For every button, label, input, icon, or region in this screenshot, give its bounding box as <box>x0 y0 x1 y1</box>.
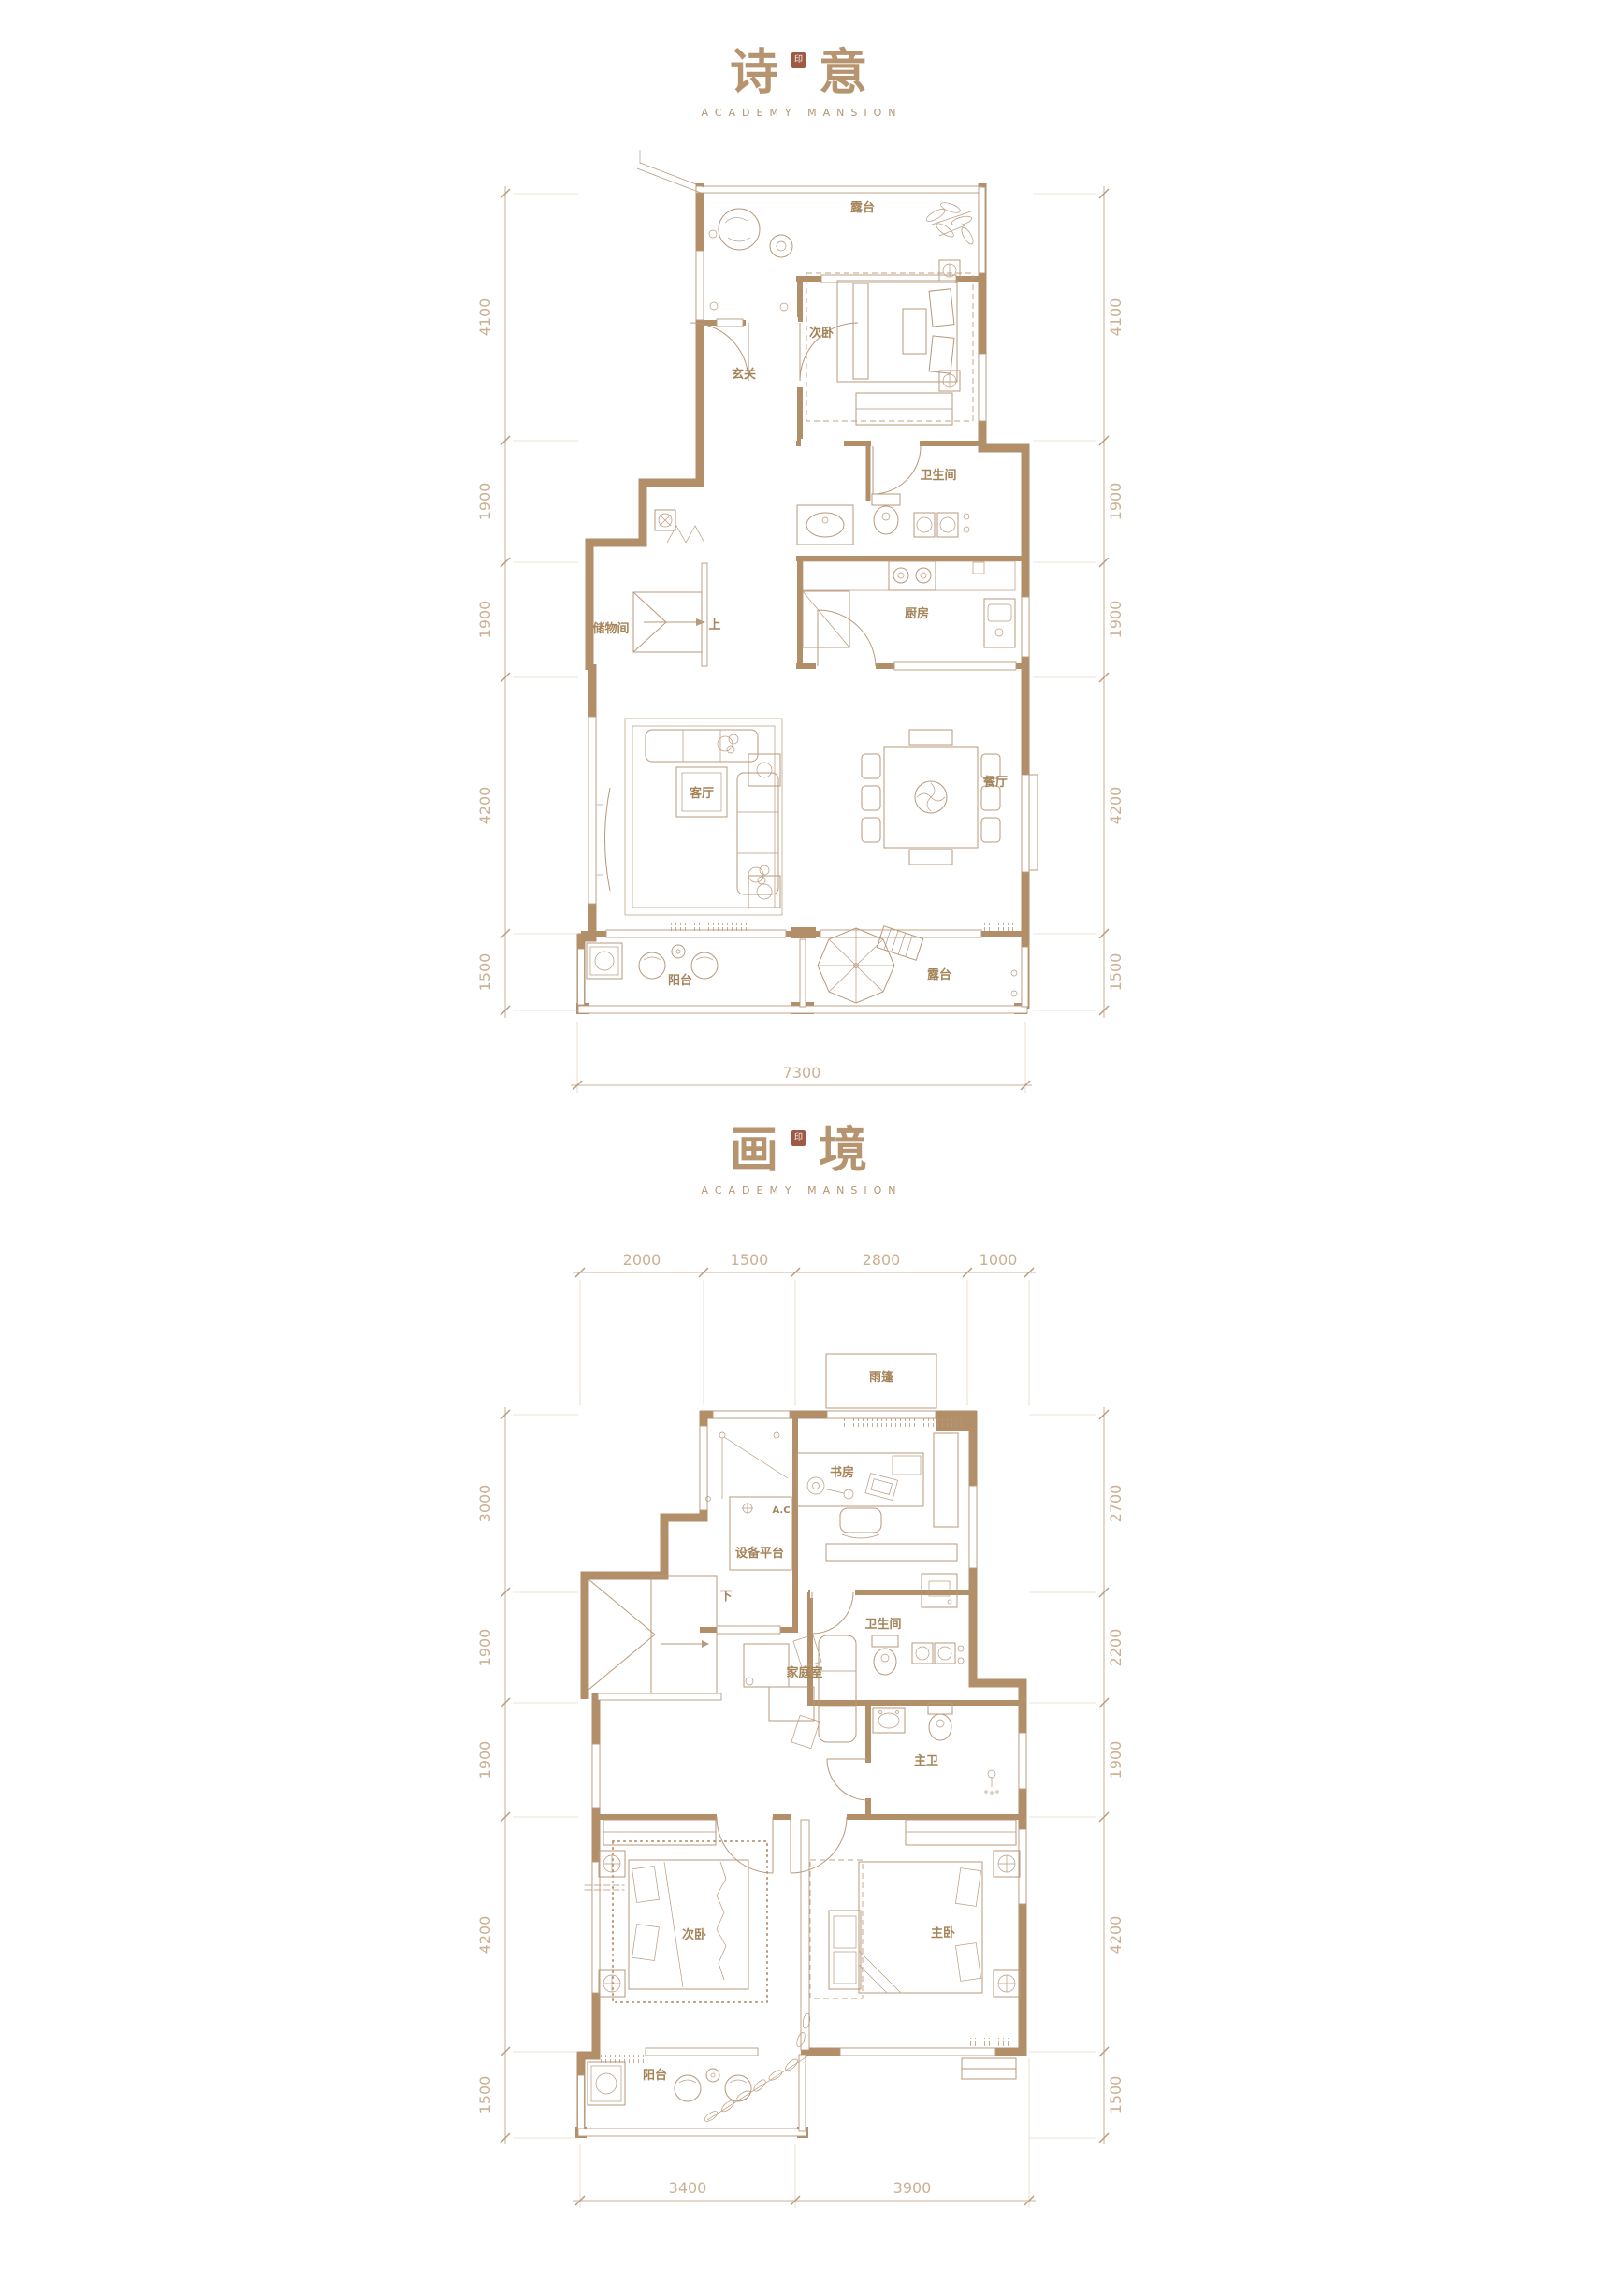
plan1-living: 客厅 <box>597 719 782 915</box>
plant-icon <box>703 2013 810 2124</box>
plan1-bathroom: 卫生间 <box>797 468 969 545</box>
plan1-balcony: 阳台 <box>587 943 718 988</box>
plan2-drawing: 雨篷 A.C 设备平台 书房 <box>468 1226 1198 2245</box>
vent-strip <box>669 923 748 931</box>
stairs-down-label: 下 <box>719 1590 732 1604</box>
vent-strip <box>984 923 1016 931</box>
flue-icon <box>655 510 675 530</box>
stairs-up-label: 上 <box>708 618 720 632</box>
tv-icon <box>597 788 610 891</box>
plan2-title: 画 印 境 ACADEMY MANSION <box>0 1125 1597 1197</box>
ac-unit-icon <box>599 1851 625 1877</box>
plan2-master-bath: 主卫 <box>873 1703 998 1794</box>
dim2-right-3: 4200 <box>1107 1916 1125 1955</box>
plan2-balcony: 阳台 <box>588 2013 811 2124</box>
laptop-icon <box>865 1474 898 1501</box>
plan1-dims-bottom: 7300 <box>571 1022 1032 1093</box>
room-label-entry: 玄关 <box>732 367 756 382</box>
dim-left-0: 4100 <box>476 298 494 337</box>
plan1-drawing: 露台 次卧 玄关 卫生间 <box>468 140 1198 1113</box>
plan2-doors <box>717 1592 868 1873</box>
plan2-title-seal-icon: 印 <box>791 1130 806 1146</box>
plan2-dims-top: 2000 1500 2800 1000 <box>573 1251 1036 1405</box>
chair-icon <box>840 1508 881 1538</box>
plan1-dining: 餐厅 <box>669 730 1016 931</box>
room-label-bath: 卫生间 <box>920 468 956 483</box>
dim2-right-1: 2200 <box>1107 1629 1125 1667</box>
dim2-bottom-0: 3400 <box>669 2179 707 2197</box>
dim2-top-1: 1500 <box>731 1251 769 1269</box>
room-label-study: 书房 <box>830 1465 854 1480</box>
ac-label: A.C <box>772 1505 790 1516</box>
dim-left-4: 1500 <box>476 953 494 992</box>
dim2-top-3: 1000 <box>980 1251 1018 1269</box>
dim2-top-2: 2800 <box>863 1251 901 1269</box>
dim2-bottom-1: 3900 <box>893 2179 932 2197</box>
washing-machine-icon <box>588 2062 625 2105</box>
room-label-bath2: 卫生间 <box>864 1617 901 1632</box>
dim2-left-0: 3000 <box>476 1485 494 1523</box>
sofa-icon <box>791 1635 856 1748</box>
plan1-title: 诗 印 意 ACADEMY MANSION <box>0 47 1597 119</box>
plan1-walls <box>576 183 1027 1014</box>
plan1-dims-left: 4100 1900 1900 4200 1500 <box>476 186 578 1018</box>
plan2-bedroom2: 次卧 <box>584 1841 768 2002</box>
dim2-left-4: 1500 <box>476 2076 494 2114</box>
room-label-canopy: 雨篷 <box>869 1370 894 1385</box>
plan2-subtitle: ACADEMY MANSION <box>0 1184 1597 1197</box>
plan1-bedroom: 次卧 <box>806 260 973 425</box>
dim-left-1: 1900 <box>476 483 494 521</box>
room-label-balcony2: 阳台 <box>643 2068 667 2083</box>
dim2-right-2: 1900 <box>1107 1741 1125 1780</box>
dim-right-3: 4200 <box>1107 787 1125 825</box>
room-label-kitchen: 厨房 <box>905 606 929 621</box>
floorplan-page: 诗 印 意 ACADEMY MANSION <box>0 0 1597 2296</box>
plant-icon <box>924 200 975 245</box>
side-table-icon <box>748 876 780 908</box>
plan2-family: 家庭室 <box>744 1635 856 1748</box>
desk-lamp-icon <box>807 1477 853 1499</box>
shower-icon <box>985 1770 998 1794</box>
dim-right-0: 4100 <box>1107 298 1125 337</box>
dim2-top-0: 2000 <box>623 1251 661 1269</box>
fan-icon <box>742 1503 753 1514</box>
dim-left-2: 1900 <box>476 601 494 639</box>
plan2-master-bedroom: 主卧 <box>810 1851 1020 2046</box>
plan2-windows <box>578 1411 1027 2136</box>
plan2-dims-left: 3000 1900 1900 4200 1500 <box>476 1407 578 2144</box>
washing-machine-icon <box>587 943 622 979</box>
room-label-dining: 餐厅 <box>982 775 1008 790</box>
ac-unit-icon <box>599 1970 625 1997</box>
plan2-wardrobes <box>603 1820 1016 1845</box>
plan1-title-char2: 意 <box>819 47 867 99</box>
plan2-bathroom: 卫生间 <box>864 1574 964 1675</box>
room-label-master: 主卧 <box>931 1925 955 1940</box>
plan2-equipment: A.C 设备平台 <box>706 1432 792 1570</box>
dim2-left-2: 1900 <box>476 1741 494 1780</box>
room-label-storage: 储物间 <box>591 621 629 636</box>
dim2-right-0: 2700 <box>1107 1485 1125 1523</box>
ac-unit-icon <box>994 1851 1020 1877</box>
room-label-bedroom2: 次卧 <box>682 1927 706 1942</box>
plant-icon <box>748 865 769 884</box>
room-label-terrace-bottom: 露台 <box>927 967 951 982</box>
plan1-title-seal-icon: 印 <box>791 52 806 68</box>
plan2-stairs-down: 下 <box>588 1576 733 1693</box>
plan1-kitchen: 厨房 <box>803 561 1015 647</box>
room-label-family: 家庭室 <box>786 1665 822 1680</box>
room-label-living: 客厅 <box>690 786 714 801</box>
ac-unit-icon <box>994 1970 1020 1997</box>
plan2-title-char1: 画 <box>730 1125 778 1177</box>
plan1-terrace-top-furniture: 露台 <box>709 200 975 311</box>
dim-left-3: 4200 <box>476 787 494 825</box>
plan1-dims-right: 4100 1900 1900 4200 1500 <box>1033 186 1125 1018</box>
umbrella-icon <box>818 928 894 1003</box>
room-label-bedroom: 次卧 <box>809 326 834 341</box>
dim2-left-3: 4200 <box>476 1916 494 1955</box>
dim-right-1: 1900 <box>1107 483 1125 521</box>
plan1-subtitle: ACADEMY MANSION <box>0 107 1597 119</box>
dim-bottom-0: 7300 <box>783 1064 821 1082</box>
plan2-dims-right: 2700 2200 1900 4200 1500 <box>1029 1407 1125 2144</box>
room-label-balcony: 阳台 <box>668 973 692 988</box>
side-table-icon <box>748 754 780 786</box>
dim2-right-4: 1500 <box>1107 2076 1125 2114</box>
dim2-left-1: 1900 <box>476 1629 494 1667</box>
plan1-title-char1: 诗 <box>730 47 778 99</box>
room-label-terrace-top: 露台 <box>850 200 875 215</box>
dim-right-4: 1500 <box>1107 953 1125 992</box>
plan2-title-char2: 境 <box>819 1125 867 1177</box>
plan2-study: 书房 <box>797 1418 965 1561</box>
room-label-master-bath: 主卫 <box>914 1753 938 1768</box>
dim-right-2: 1900 <box>1107 601 1125 639</box>
room-label-equipment: 设备平台 <box>735 1546 784 1561</box>
